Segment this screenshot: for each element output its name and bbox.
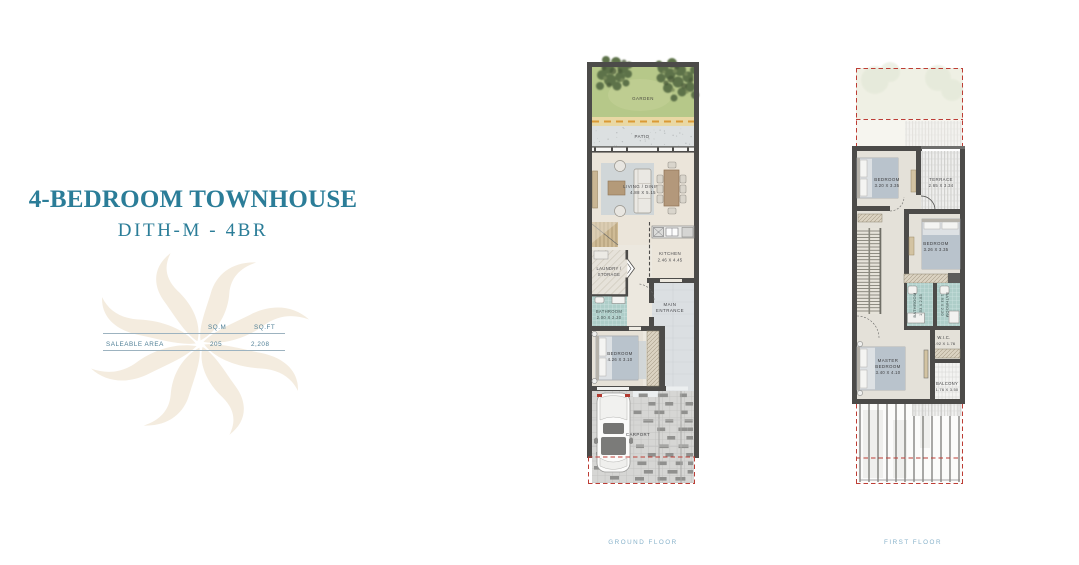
svg-text:3.20 X 3.35: 3.20 X 3.35 [875,183,900,188]
svg-text:BALCONY: BALCONY [936,381,958,386]
svg-text:STORAGE: STORAGE [598,272,621,277]
svg-text:MASTER: MASTER [878,358,899,363]
svg-text:3.26 X 3.35: 3.26 X 3.35 [924,247,949,252]
svg-text:GARDEN: GARDEN [632,96,654,101]
svg-text:BATHROOM: BATHROOM [596,309,622,314]
svg-text:2.65 X 3.34: 2.65 X 3.34 [929,183,954,188]
svg-text:W.I.C.: W.I.C. [937,335,950,340]
svg-text:1.93 X 2.20: 1.93 X 2.20 [940,294,944,316]
svg-text:1.92 X 1.76: 1.92 X 1.76 [933,341,956,346]
svg-text:BATHROOM: BATHROOM [945,292,950,317]
svg-text:BEDROOM: BEDROOM [875,364,901,369]
svg-text:TERRACE: TERRACE [929,177,953,182]
svg-text:BEDROOM: BEDROOM [607,351,633,356]
svg-text:PATIO: PATIO [634,134,649,139]
svg-text:CARPORT: CARPORT [626,432,650,437]
svg-text:ENTRANCE: ENTRANCE [656,308,684,313]
svg-text:BEDROOM: BEDROOM [923,241,949,246]
svg-text:4.88 X 5.15: 4.88 X 5.15 [630,190,656,195]
svg-text:3.40 X 4.10: 3.40 X 4.10 [876,370,901,375]
svg-text:MAIN: MAIN [664,302,677,307]
svg-text:LAUNDRY /: LAUNDRY / [597,266,622,271]
svg-text:KITCHEN: KITCHEN [659,251,681,256]
svg-text:BEDROOM: BEDROOM [874,177,900,182]
svg-text:GROUND FLOOR: GROUND FLOOR [608,539,677,546]
svg-text:1.76 X 3.50: 1.76 X 3.50 [936,387,959,392]
svg-text:2.46 X 4.45: 2.46 X 4.45 [658,258,683,263]
svg-text:FIRST FLOOR: FIRST FLOOR [884,539,942,546]
svg-text:2.00 X 2.20: 2.00 X 2.20 [597,315,622,320]
svg-text:4.26 X 3.10: 4.26 X 3.10 [608,357,633,362]
svg-text:BATHROOM: BATHROOM [912,292,917,317]
svg-text:1.93 X 2.63: 1.93 X 2.63 [919,294,923,316]
